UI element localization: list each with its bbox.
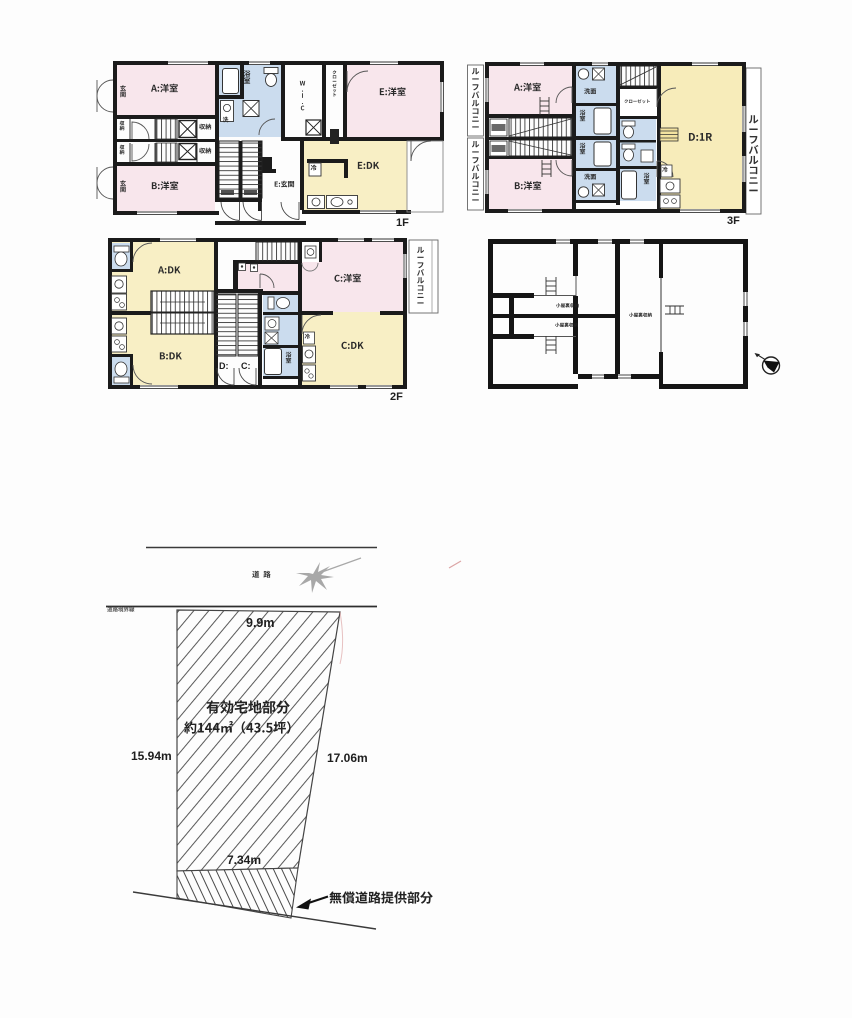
svg-text:3F: 3F [727,215,740,227]
svg-text:1F: 1F [396,217,409,229]
svg-text:17.06m: 17.06m [327,751,368,765]
svg-text:C:: C: [241,361,251,371]
svg-text:7.34m: 7.34m [227,853,261,867]
svg-text:9.9m: 9.9m [246,616,275,630]
svg-text:15.94m: 15.94m [131,749,172,763]
svg-text:2F: 2F [390,391,403,403]
svg-text:D:: D: [219,361,229,371]
